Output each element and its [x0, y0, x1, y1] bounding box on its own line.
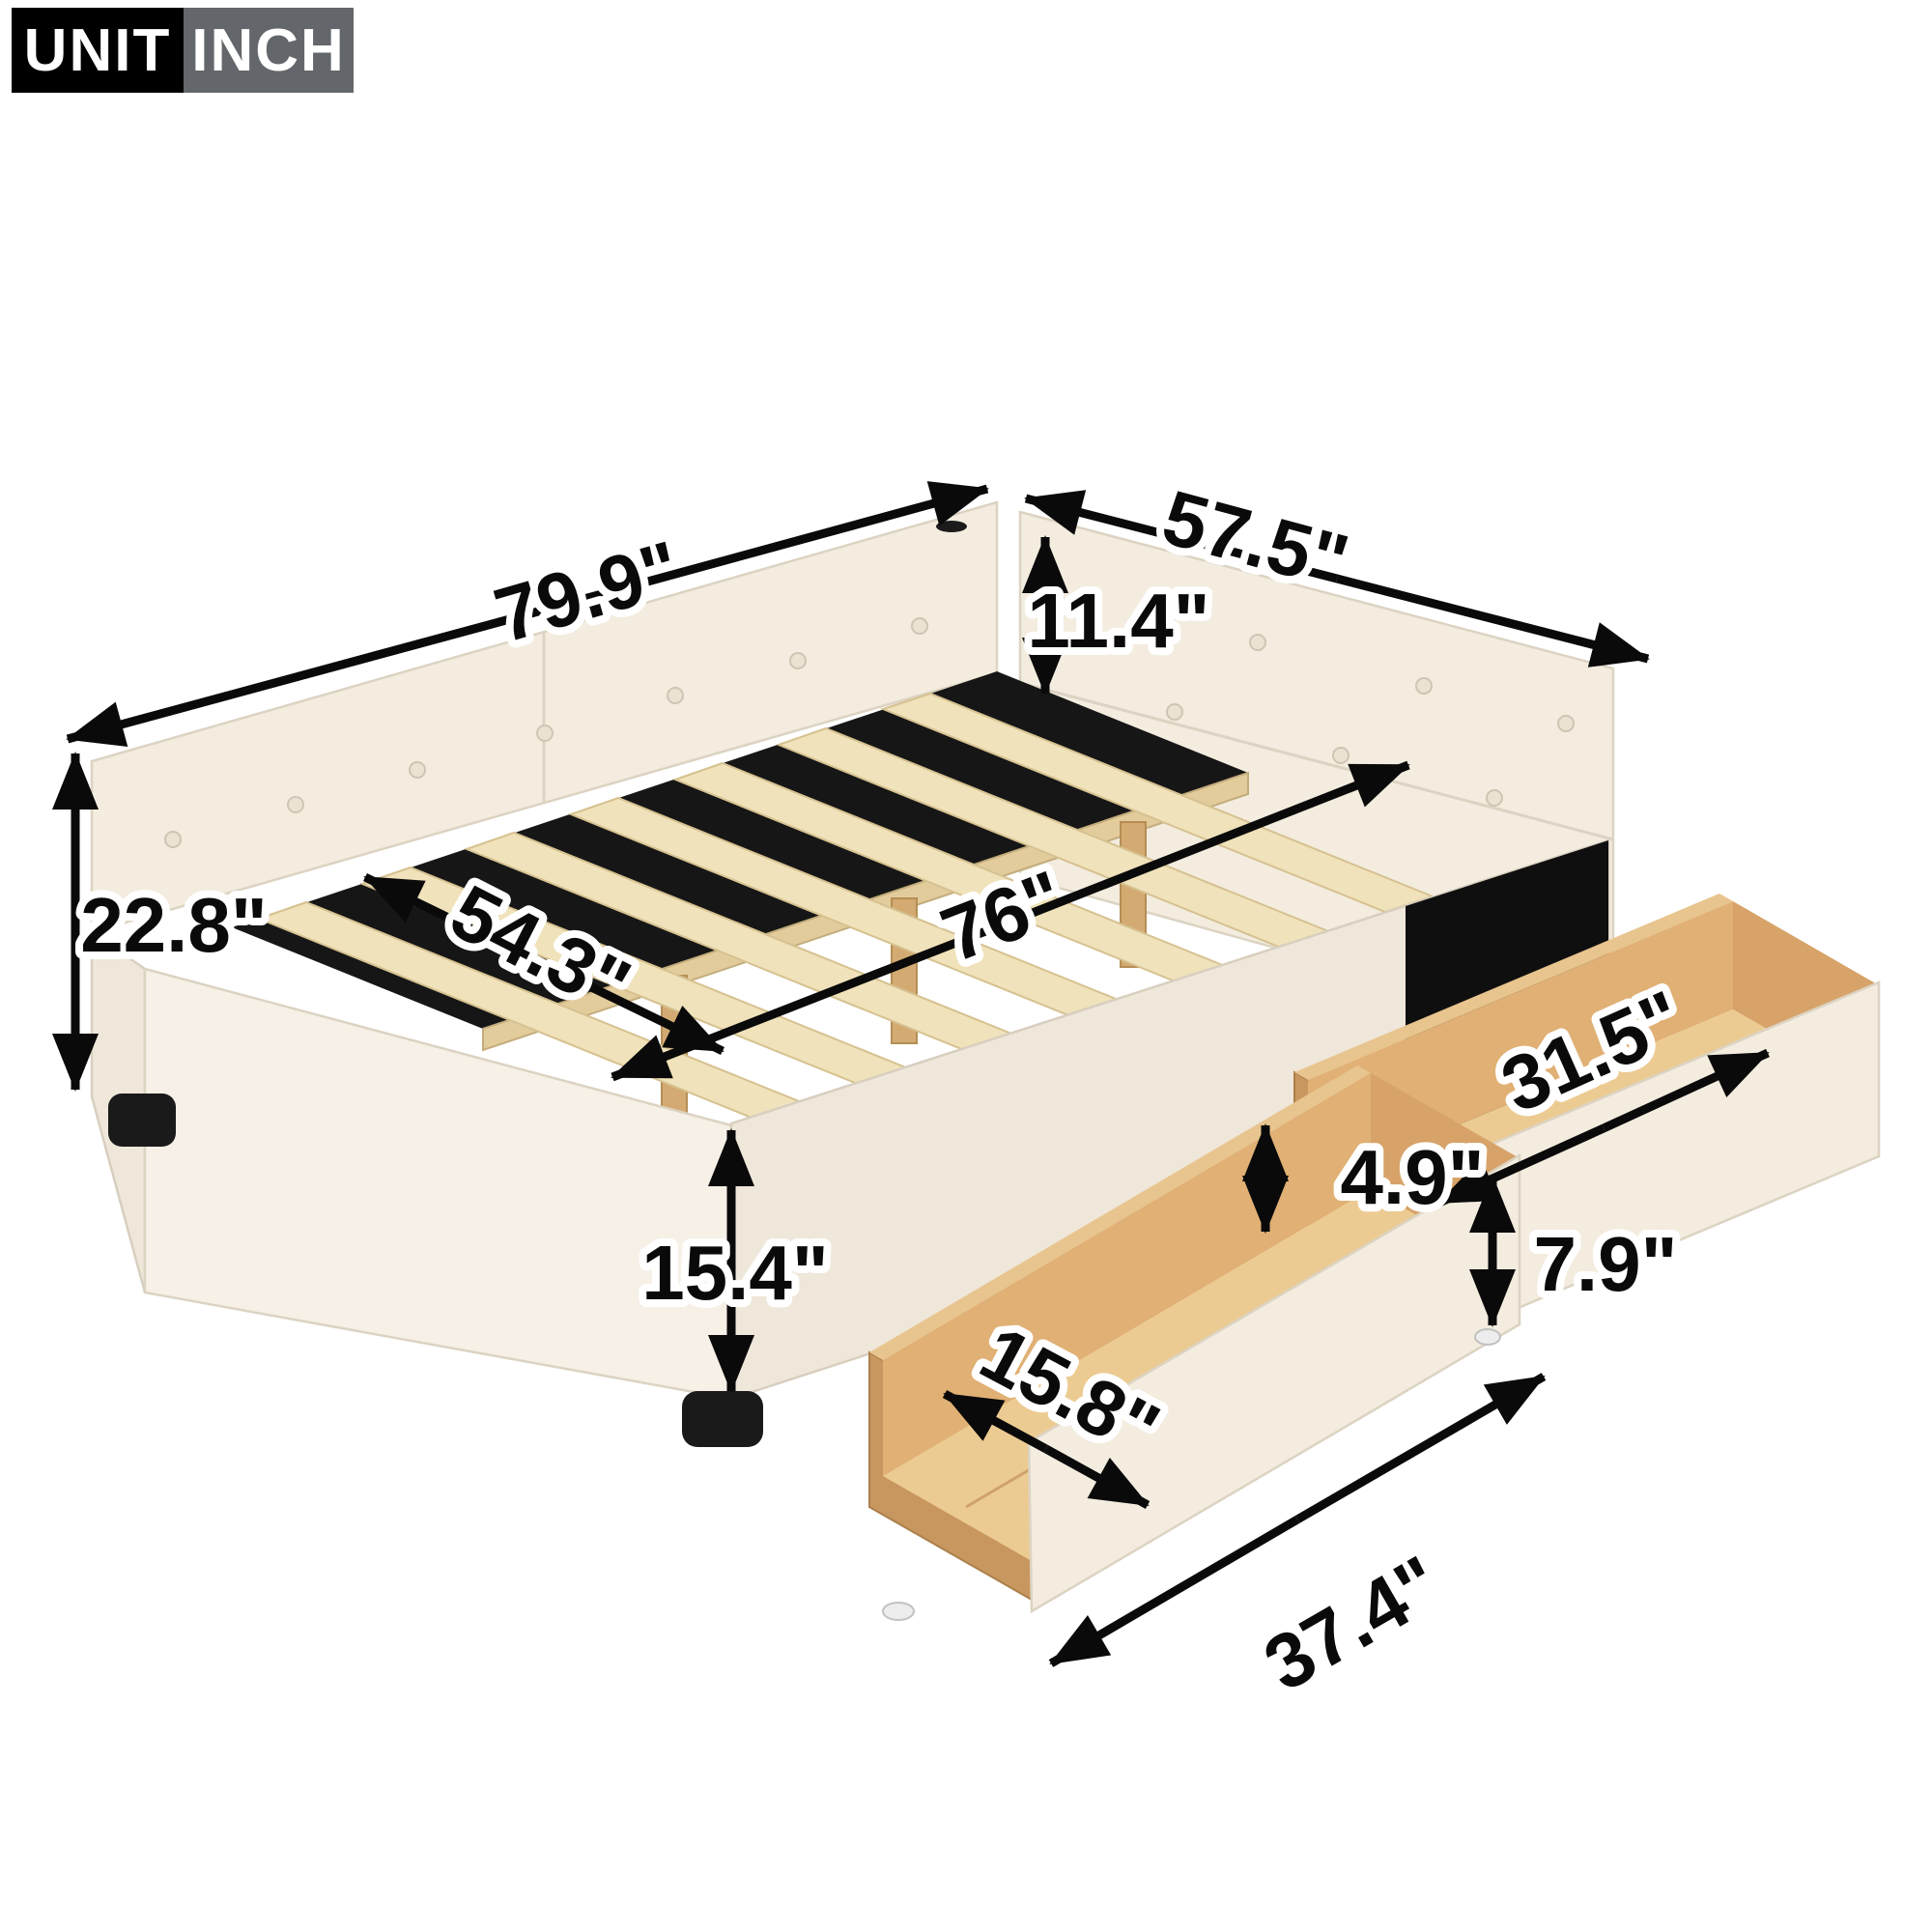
unit-badge-label: UNIT [12, 8, 184, 93]
corner-foot [682, 1391, 763, 1447]
front-drawer-foot-right [1475, 1329, 1500, 1345]
dimension-diagram: UNIT INCH [0, 0, 1932, 1932]
left-foot [108, 1094, 176, 1147]
dim-label-drawer-length: 37.4" [1250, 1539, 1455, 1707]
left-side-face [145, 969, 731, 1399]
dim-label-total-height: 22.8" [80, 882, 268, 968]
dim-label-drawer-front-height: 7.9" [1533, 1221, 1677, 1307]
dim-label-back-height: 11.4" [1027, 578, 1209, 664]
unit-badge: UNIT INCH [12, 8, 354, 93]
dim-label-side-height: 15.4" [641, 1230, 829, 1316]
front-drawer-foot [883, 1603, 914, 1620]
daybed-illustration: 79.9" 57.5" 11.4" 22.8" 54.3" [0, 0, 1932, 1932]
unit-badge-value: INCH [184, 8, 354, 93]
dim-label-drawer-inner-height: 4.9" [1340, 1134, 1484, 1220]
usb-port-icon [936, 521, 967, 532]
